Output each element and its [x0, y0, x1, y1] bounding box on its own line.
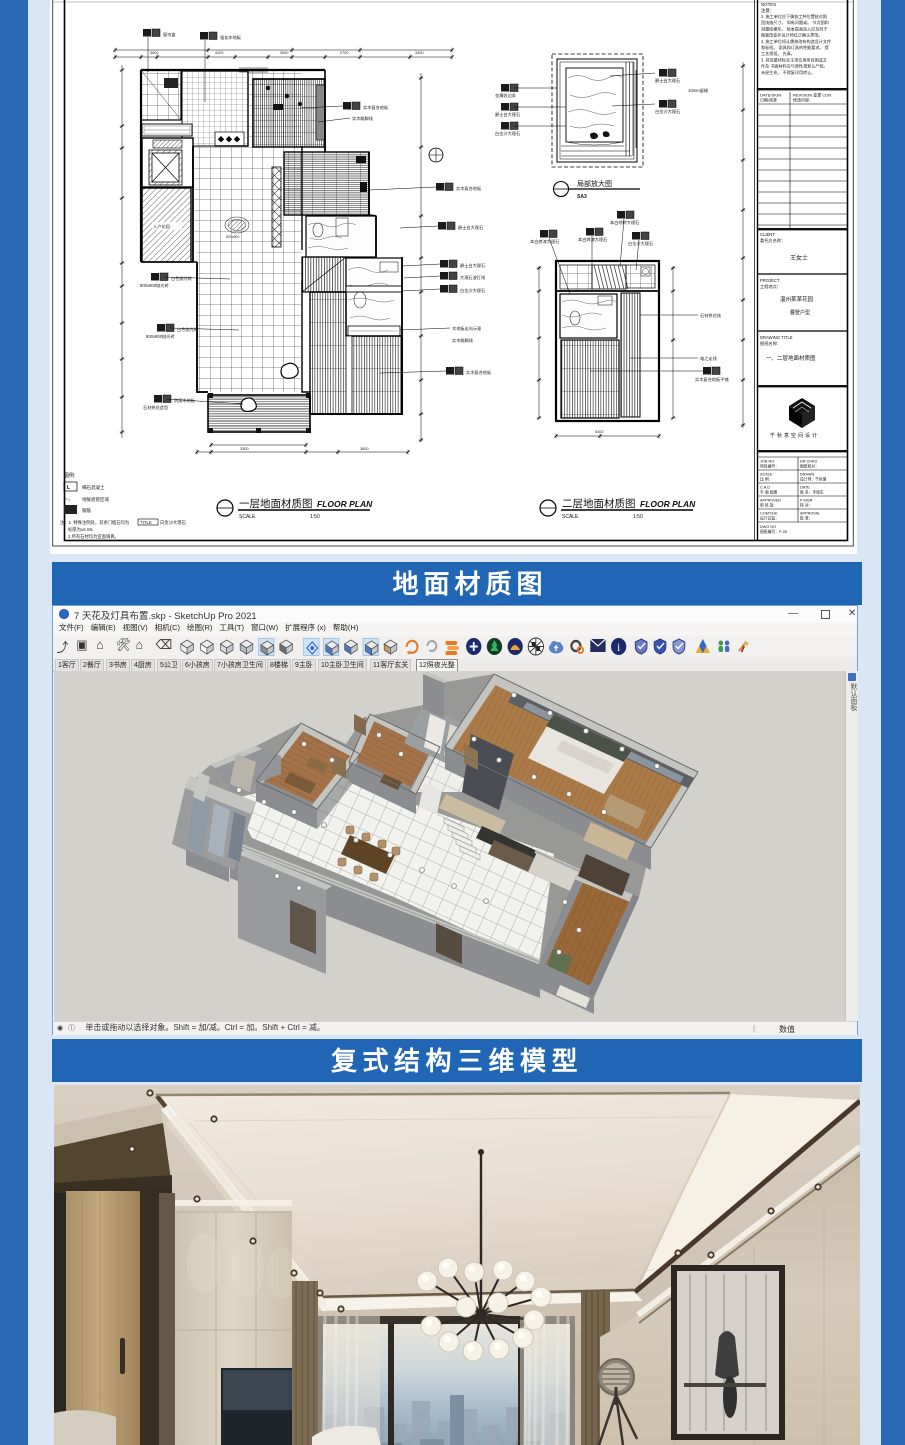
svg-text:审 核 批: 审 核 批: [760, 503, 774, 508]
svg-text:爵士白大理石: 爵士白大理石: [458, 224, 483, 231]
svg-text:日期/核准: 日期/核准: [760, 97, 777, 103]
svg-text:白金沙大理石: 白金沙大理石: [495, 130, 520, 137]
svg-text:本白烤漆大理石: 本白烤漆大理石: [578, 236, 607, 243]
svg-text:白金沙大理石: 白金沙大理石: [628, 240, 653, 247]
svg-text:比 例：: 比 例：: [760, 477, 772, 482]
svg-text:本白地砖大理石: 本白地砖大理石: [610, 219, 639, 226]
svg-text:一、二层地面材质图: 一、二层地面材质图: [766, 354, 816, 362]
svg-text:1:50: 1:50: [310, 514, 320, 520]
svg-text:实木踢脚线: 实木踢脚线: [352, 115, 374, 122]
svg-text:电之走线: 电之走线: [700, 355, 718, 362]
svg-text:一层地面材质图: 一层地面材质图: [239, 497, 313, 510]
svg-text:石材拼花造型: 石材拼花造型: [143, 404, 168, 411]
svg-text:钢筋: 钢筋: [82, 507, 91, 514]
svg-text:10mm留缝: 10mm留缝: [688, 87, 709, 94]
svg-text:L: L: [67, 485, 70, 491]
svg-text:白金沙大理石: 白金沙大理石: [160, 519, 186, 526]
svg-text:千秋意空间设计: 千秋意空间设计: [770, 432, 819, 439]
svg-text:平 面 绘图: 平 面 绘图: [760, 490, 778, 495]
svg-text:3600: 3600: [150, 51, 158, 55]
svg-text:测量结横布。 绘本提高加入应及时于: 测量结横布。 绘本提高加入应及时于: [761, 25, 828, 31]
svg-text:实木复合地板: 实木复合地板: [456, 185, 482, 192]
svg-text:2. 施工单位如认需修改有构造设计文件: 2. 施工单位如认需修改有构造设计文件: [761, 38, 831, 44]
svg-text:DWG NO: DWG NO: [760, 525, 776, 529]
svg-text:本白烤漆大理石: 本白烤漆大理石: [530, 238, 559, 245]
svg-text:图例:: 图例:: [64, 472, 75, 479]
svg-text:3300: 3300: [415, 51, 423, 55]
svg-text:局部放大图: 局部放大图: [577, 179, 612, 188]
svg-text:~↓: ~↓: [65, 497, 70, 503]
svg-text:注意：: 注意：: [761, 7, 774, 14]
svg-text:2.所有石材均为亚面调真。: 2.所有石材均为亚面调真。: [68, 533, 119, 540]
svg-text:1:50: 1:50: [633, 514, 643, 520]
svg-text:800x800抛光砖: 800x800抛光砖: [146, 333, 175, 340]
svg-text:地暖盘管区域: 地暖盘管区域: [82, 496, 109, 503]
svg-text:图纸名称：: 图纸名称：: [760, 340, 781, 347]
svg-text:i: i: [617, 642, 620, 655]
svg-text:核 对：: 核 对：: [800, 503, 812, 508]
svg-text:白色抛光砖: 白色抛光砖: [177, 326, 198, 333]
svg-text:TITLE: TITLE: [140, 520, 152, 525]
svg-text:白金沙大理石: 白金沙大理石: [655, 108, 680, 115]
svg-text:3600: 3600: [360, 447, 368, 451]
svg-text:姓 名：手绘生: 姓 名：手绘生: [800, 490, 824, 495]
svg-text:2700: 2700: [340, 51, 348, 55]
svg-text:爵士白大理石: 爵士白大理石: [655, 77, 680, 84]
svg-text:SCALE: SCALE: [562, 514, 579, 520]
svg-text:SCALE: SCALE: [760, 473, 773, 477]
svg-text:DRAWN: DRAWN: [800, 473, 814, 477]
svg-text:强化木地板: 强化木地板: [220, 34, 242, 41]
svg-text:C.A.D: C.A.D: [760, 486, 770, 490]
svg-text:3900: 3900: [280, 51, 288, 55]
svg-text:SCALE: SCALE: [239, 514, 256, 520]
svg-text:叠墅户型: 叠墅户型: [790, 309, 810, 316]
svg-text:和标纸。 家具和订具的性能要求。 提: 和标纸。 家具和订具的性能要求。 提: [761, 44, 829, 50]
svg-text:COM'CHK: COM'CHK: [760, 512, 778, 516]
svg-text:实木踢脚线: 实木踢脚线: [452, 337, 474, 344]
svg-text:木地板走向示意: 木地板走向示意: [452, 325, 481, 332]
svg-text:爵士白大理石: 爵士白大理石: [495, 111, 520, 118]
svg-text:实木复合地板平铺: 实木复合地板平铺: [695, 376, 729, 383]
svg-text:白金沙大理石: 白金沙大理石: [460, 287, 485, 294]
svg-text:实木复合地板: 实木复合地板: [466, 369, 492, 376]
svg-text:白色抛光砖: 白色抛光砖: [171, 275, 192, 282]
svg-text:工程地点：: 工程地点：: [760, 283, 781, 290]
svg-text:入户花园: 入户花园: [153, 223, 170, 230]
svg-text:PROJECT: PROJECT: [760, 278, 780, 283]
svg-text:爵士白大理石: 爵士白大理石: [460, 262, 485, 269]
svg-text:设计总监：: 设计总监：: [760, 516, 779, 521]
svg-text:DATE: DATE: [800, 486, 810, 490]
svg-text:标厚为±5.WL: 标厚为±5.WL: [68, 526, 94, 533]
svg-text:3300: 3300: [240, 447, 248, 451]
svg-text:批 准：: 批 准：: [800, 516, 812, 521]
svg-text:JOB NO: JOB NO: [760, 460, 774, 464]
svg-text:项目编号：: 项目编号：: [760, 464, 779, 469]
svg-text:件及 书面材料应与原性规划认产权。: 件及 书面材料应与原性规划认产权。: [761, 63, 828, 69]
svg-text:3. 其现量终标业主单位用所有图或文: 3. 其现量终标业主单位用所有图或文: [761, 56, 827, 62]
svg-text:4200: 4200: [215, 51, 223, 55]
svg-text:石材拼花线: 石材拼花线: [700, 312, 722, 319]
svg-text:图纸校对：: 图纸校对：: [800, 464, 819, 469]
svg-text:细石混凝土: 细石混凝土: [82, 484, 105, 491]
svg-text:DR CHKD: DR CHKD: [800, 460, 818, 464]
svg-text:设计师：千秋意: 设计师：千秋意: [800, 477, 827, 482]
svg-text:DRAWING TITLE: DRAWING TITLE: [760, 335, 793, 340]
svg-text:大理石波打线: 大理石波打线: [460, 274, 486, 281]
svg-text:窗帘盒: 窗帘盒: [163, 31, 176, 38]
svg-text:APPROVAL: APPROVAL: [800, 512, 820, 516]
svg-text:工艺规程。 先真。: 工艺规程。 先真。: [761, 50, 795, 56]
svg-text:未经生充。 不得复印用转让。: 未经生充。 不得复印用转让。: [761, 69, 815, 75]
svg-text:王女士: 王女士: [790, 254, 808, 262]
svg-text:二层地面材质图: 二层地面材质图: [562, 497, 636, 510]
svg-text:APPROVED: APPROVED: [760, 499, 781, 503]
svg-text:图纸编号：P-05: 图纸编号：P-05: [760, 529, 787, 534]
svg-text:图被改变补设计师红正确认更改。: 图被改变补设计师红正确认更改。: [761, 32, 822, 38]
svg-text:CLIENT: CLIENT: [760, 232, 775, 237]
svg-text:温州某某花园: 温州某某花园: [780, 295, 814, 303]
svg-text:FLOOR PLAN: FLOOR PLAN: [317, 499, 373, 509]
svg-text:FLOOR PLAN: FLOOR PLAN: [640, 499, 696, 509]
svg-text:金属收边条: 金属收边条: [495, 92, 517, 99]
svg-text:委托方名称：: 委托方名称：: [760, 237, 785, 244]
svg-text:修改内容：: 修改内容：: [793, 97, 813, 103]
svg-text:注：1. 特殊注明处，其余门槛石均为: 注：1. 特殊注明处，其余门槛石均为: [60, 519, 129, 526]
svg-text:800x800抛光砖: 800x800抛光砖: [140, 282, 169, 289]
svg-text:实木复合地板: 实木复合地板: [363, 104, 389, 111]
svg-text:团块施尺寸。 如有问题或。 节点图和: 团块施尺寸。 如有问题或。 节点图和: [761, 19, 829, 25]
svg-text:P MGR: P MGR: [800, 499, 813, 503]
svg-text:1. 施工单位应下属各工种位置核对照: 1. 施工单位应下属各工种位置核对照: [761, 13, 827, 19]
svg-text:NOTES: NOTES: [761, 2, 776, 7]
svg-text:6300: 6300: [595, 430, 603, 434]
svg-text:800x800: 800x800: [226, 235, 239, 239]
svg-text:SA3: SA3: [577, 194, 587, 200]
